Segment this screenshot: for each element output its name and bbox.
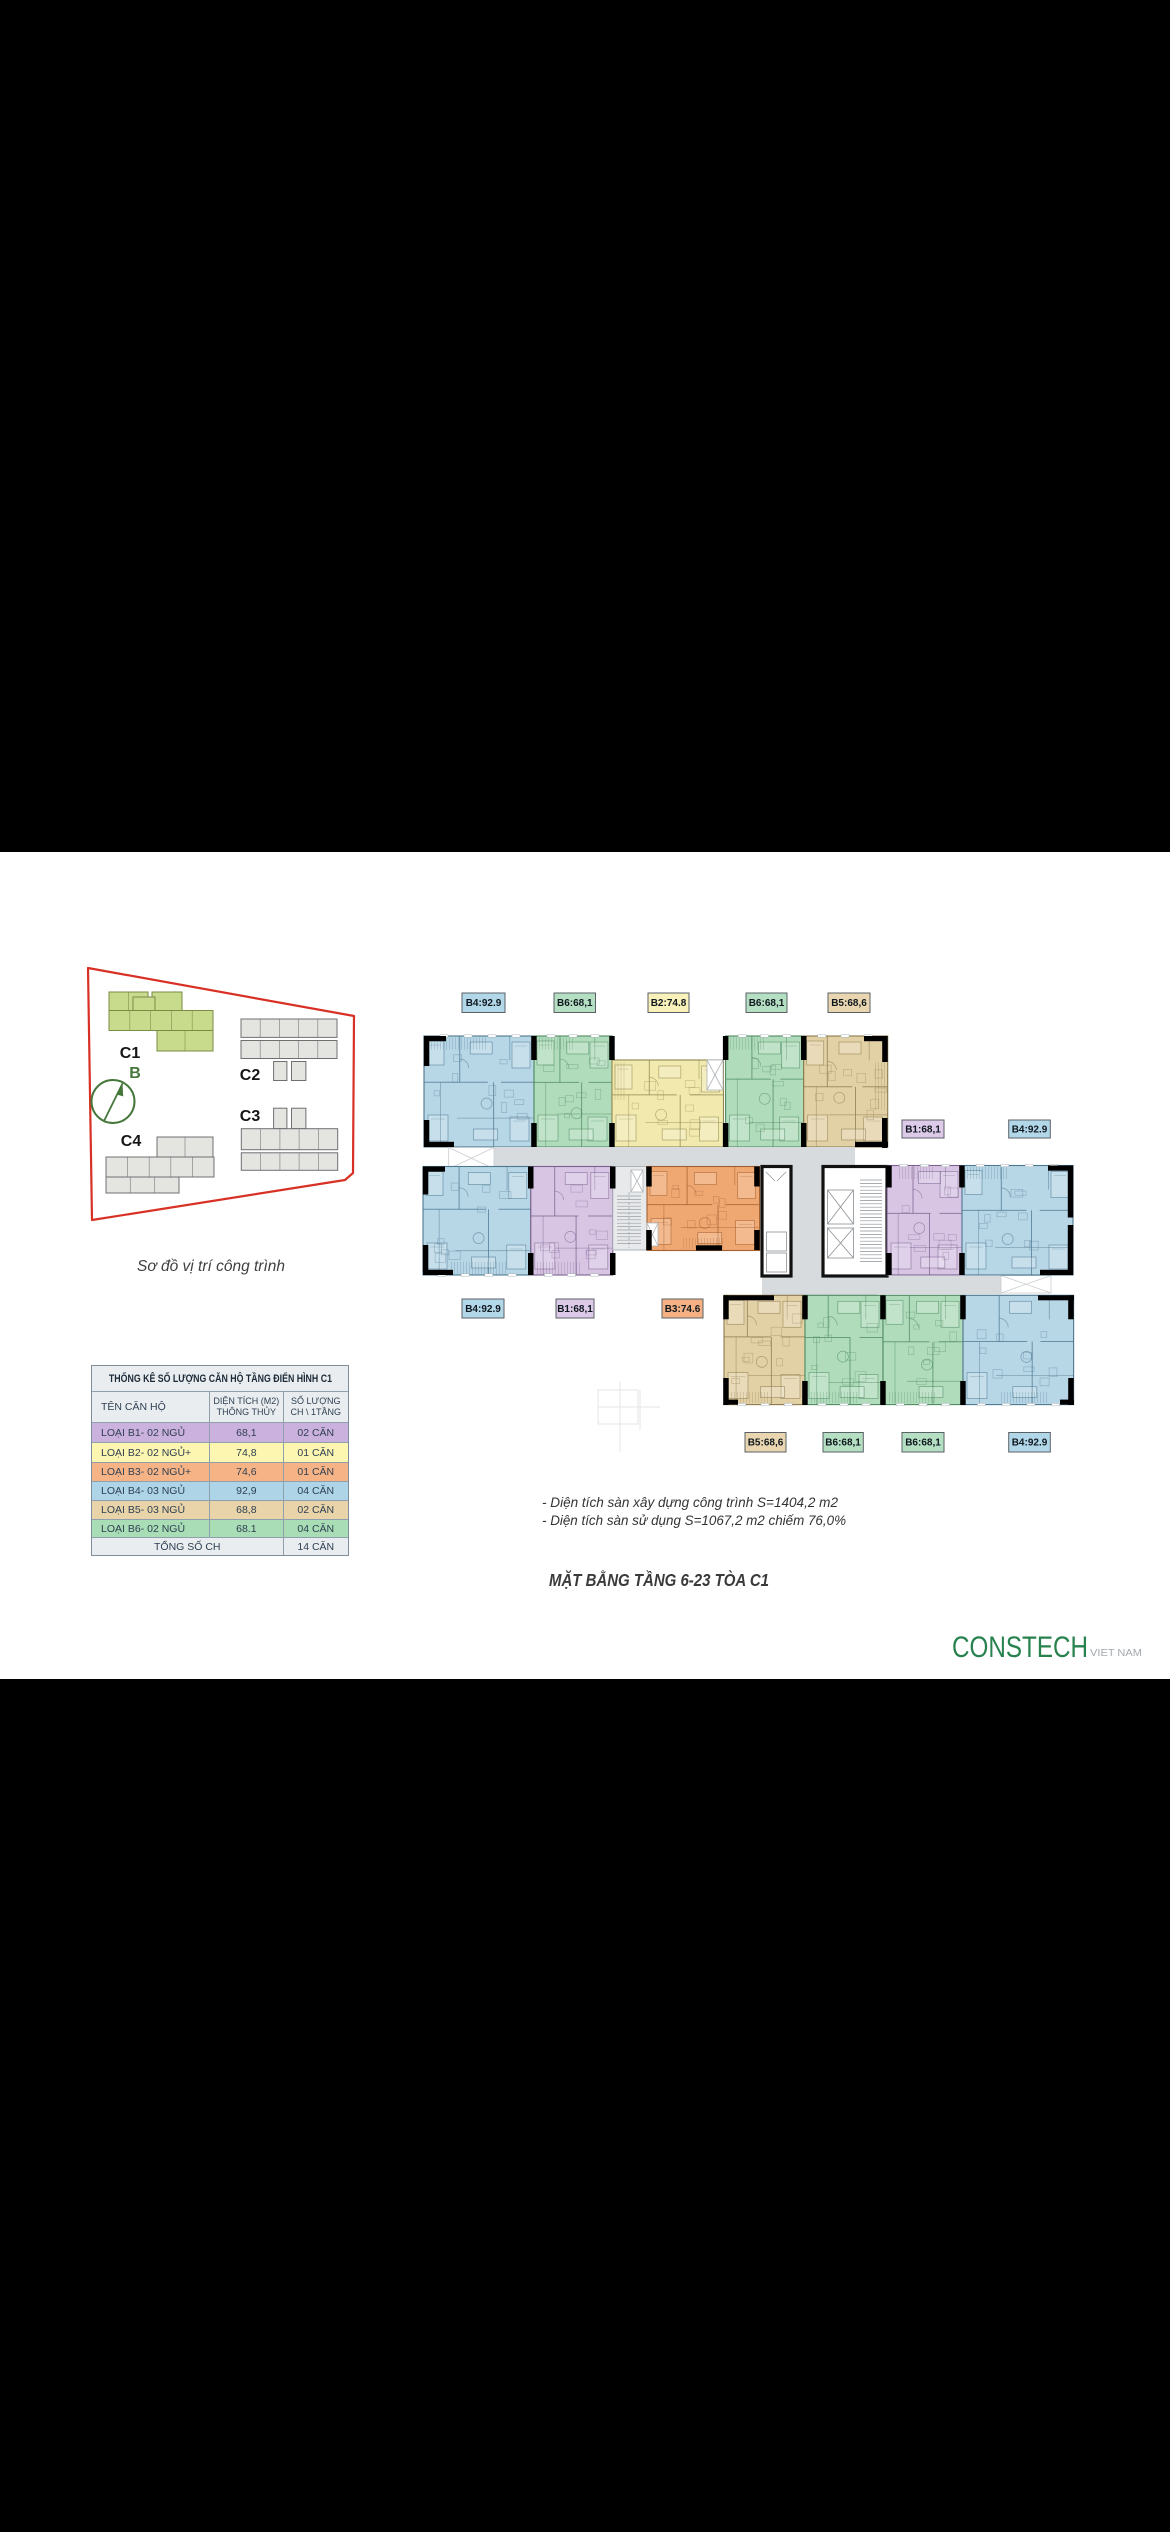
svg-text:B4:92.9: B4:92.9 — [1012, 1124, 1048, 1135]
svg-text:B5:68,6: B5:68,6 — [748, 1438, 784, 1449]
svg-text:C2: C2 — [240, 1067, 261, 1084]
svg-text:C1: C1 — [120, 1045, 141, 1062]
svg-text:C4: C4 — [121, 1133, 142, 1150]
svg-text:MẶT BẰNG TẦNG 6-23 TÒA C1: MẶT BẰNG TẦNG 6-23 TÒA C1 — [549, 1569, 769, 1590]
svg-text:B4:92.9: B4:92.9 — [465, 1304, 501, 1315]
svg-text:CONSTECH: CONSTECH — [952, 1631, 1088, 1664]
svg-text:C3: C3 — [240, 1108, 261, 1125]
svg-text:VIET NAM: VIET NAM — [1090, 1647, 1142, 1659]
svg-text:B5:68,6: B5:68,6 — [831, 998, 867, 1009]
svg-text:- Diện tích sàn sử dụng S=1067: - Diện tích sàn sử dụng S=1067,2 m2 chiế… — [542, 1512, 846, 1528]
svg-text:B6:68,1: B6:68,1 — [825, 1438, 861, 1449]
svg-text:B6:68,1: B6:68,1 — [749, 998, 785, 1009]
svg-text:- Diện tích sàn xây dựng công: - Diện tích sàn xây dựng công trình S=14… — [542, 1494, 838, 1510]
svg-text:B: B — [129, 1065, 141, 1082]
svg-text:B6:68,1: B6:68,1 — [557, 998, 593, 1009]
svg-text:B4:92.9: B4:92.9 — [466, 998, 502, 1009]
svg-text:B1:68,1: B1:68,1 — [905, 1124, 941, 1135]
svg-text:B2:74.8: B2:74.8 — [651, 998, 687, 1009]
svg-text:Sơ đồ vị trí công trình: Sơ đồ vị trí công trình — [137, 1258, 285, 1275]
svg-text:B4:92.9: B4:92.9 — [1012, 1438, 1048, 1449]
svg-text:B3:74.6: B3:74.6 — [665, 1304, 701, 1315]
svg-text:B1:68,1: B1:68,1 — [557, 1304, 593, 1315]
svg-text:B6:68,1: B6:68,1 — [905, 1438, 941, 1449]
